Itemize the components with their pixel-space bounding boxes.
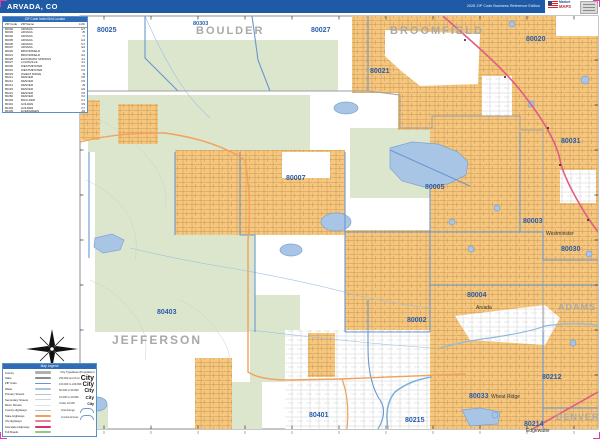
interchange-icon	[80, 415, 94, 420]
crop-mark	[593, 432, 600, 439]
map-legend: Map Legend CountyStateZIP CodeWaterPrima…	[2, 363, 97, 437]
sw-minor-swatch	[35, 405, 51, 406]
sw-toll-swatch	[35, 431, 51, 433]
interchange-icon	[80, 408, 94, 413]
legend-extra: Limited Access	[59, 414, 96, 421]
sw-shwy-swatch	[35, 415, 51, 417]
sw-uhwy-swatch	[35, 420, 51, 422]
brand-name: MarketMAPS	[559, 1, 571, 9]
title-bar: ARVADA, CO 2026 ZIP Code Business Refere…	[0, 0, 545, 13]
legend-item: Toll Roads	[5, 429, 59, 434]
sw-state-swatch	[35, 377, 51, 380]
sw-ihwy-swatch	[35, 426, 51, 428]
sw-county-swatch	[35, 371, 51, 374]
page-title: ARVADA, CO	[7, 0, 58, 13]
edition-label: 2026 ZIP Code Business Reference Edition	[467, 0, 540, 13]
city-typeface-header: City Typefaces (Population)	[59, 370, 96, 374]
table-row: 80439EVERGREENA9	[3, 110, 87, 114]
sw-zip-swatch	[35, 383, 51, 385]
zip-code-index-table: ZIP Code Index/Grid Locator ZIP Code ZIP…	[2, 16, 88, 113]
crop-mark	[0, 432, 7, 439]
crop-mark	[0, 0, 7, 7]
publisher-logo: MarketMAPS	[545, 0, 600, 15]
sw-sec-swatch	[35, 399, 51, 400]
crop-mark	[593, 0, 600, 7]
legend-extra: Interchange	[59, 407, 96, 414]
sw-water-swatch	[35, 388, 51, 391]
sw-chwy-swatch	[35, 410, 51, 412]
map-page: { "header": { "title": "ARVADA, CO", "ed…	[0, 0, 600, 439]
sw-prim-swatch	[35, 394, 51, 396]
flag-icon	[548, 1, 558, 8]
